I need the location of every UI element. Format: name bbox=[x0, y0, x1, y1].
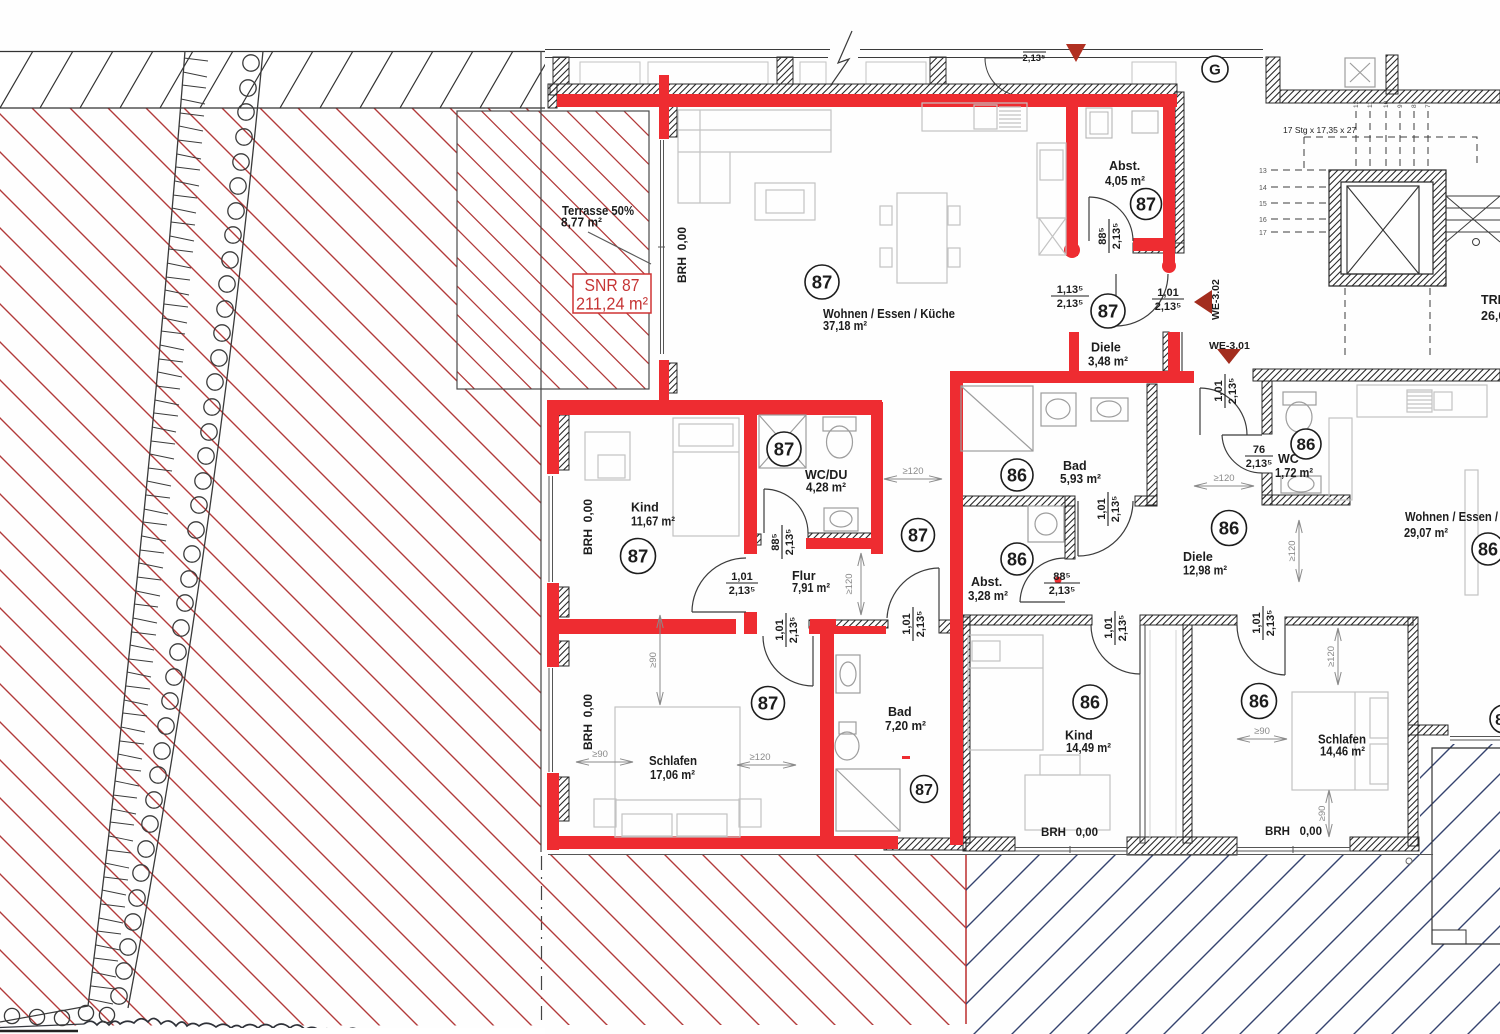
svg-text:Kind: Kind bbox=[631, 501, 659, 515]
svg-text:2,13⁵: 2,13⁵ bbox=[915, 611, 927, 638]
svg-text:2,13⁵: 2,13⁵ bbox=[1057, 298, 1084, 310]
svg-text:17 Stg x 17,35 x 27: 17 Stg x 17,35 x 27 bbox=[1283, 125, 1357, 135]
svg-text:7,20 m²: 7,20 m² bbox=[885, 719, 926, 733]
svg-text:Wohnen / Essen /: Wohnen / Essen / bbox=[1405, 510, 1498, 524]
svg-text:87: 87 bbox=[1098, 301, 1119, 322]
svg-text:2,13⁵: 2,13⁵ bbox=[1265, 610, 1277, 637]
svg-text:≥120: ≥120 bbox=[844, 573, 855, 594]
svg-text:Diele: Diele bbox=[1183, 550, 1213, 564]
svg-text:11,67 m²: 11,67 m² bbox=[631, 515, 675, 529]
svg-text:BRH 0,00: BRH 0,00 bbox=[1265, 824, 1322, 838]
svg-text:2,13⁵: 2,13⁵ bbox=[784, 529, 796, 556]
svg-text:1,01: 1,01 bbox=[1251, 612, 1263, 633]
svg-text:1,01: 1,01 bbox=[1213, 380, 1225, 401]
svg-text:WE-3.02: WE-3.02 bbox=[1210, 279, 1222, 320]
svg-text:TRH: TRH bbox=[1481, 293, 1500, 307]
svg-text:8,77 m²: 8,77 m² bbox=[561, 216, 602, 230]
svg-text:86: 86 bbox=[1478, 539, 1498, 559]
svg-text:86: 86 bbox=[1297, 435, 1316, 454]
svg-text:1,01: 1,01 bbox=[1157, 287, 1178, 299]
svg-text:9: 9 bbox=[1397, 104, 1404, 108]
svg-text:8: 8 bbox=[1411, 104, 1418, 108]
svg-text:1,01: 1,01 bbox=[774, 619, 786, 640]
svg-text:211,24 m²: 211,24 m² bbox=[576, 294, 648, 314]
svg-text:12,98 m²: 12,98 m² bbox=[1183, 564, 1227, 578]
svg-text:87: 87 bbox=[774, 439, 795, 460]
svg-text:2,13⁵: 2,13⁵ bbox=[1111, 223, 1123, 250]
svg-text:86: 86 bbox=[1219, 518, 1240, 539]
svg-text:2,13⁵: 2,13⁵ bbox=[1110, 496, 1122, 523]
svg-text:G: G bbox=[1209, 61, 1221, 78]
svg-text:1,01: 1,01 bbox=[731, 571, 752, 583]
svg-text:76: 76 bbox=[1253, 444, 1265, 456]
svg-text:Diele: Diele bbox=[1091, 341, 1121, 355]
svg-text:14,49 m²: 14,49 m² bbox=[1066, 741, 1111, 755]
svg-text:87: 87 bbox=[915, 782, 933, 799]
svg-text:37,18 m²: 37,18 m² bbox=[823, 319, 867, 333]
svg-text:2,13⁵: 2,13⁵ bbox=[1117, 615, 1129, 642]
svg-text:87: 87 bbox=[758, 693, 779, 714]
svg-text:≥90: ≥90 bbox=[1317, 806, 1328, 822]
svg-text:87: 87 bbox=[628, 546, 649, 567]
svg-text:7: 7 bbox=[1425, 104, 1432, 108]
svg-text:SNR 87: SNR 87 bbox=[585, 275, 640, 295]
svg-text:14: 14 bbox=[1259, 185, 1267, 192]
svg-text:1,01: 1,01 bbox=[901, 613, 913, 634]
svg-text:1,13⁵: 1,13⁵ bbox=[1057, 284, 1084, 296]
svg-text:1,01: 1,01 bbox=[1096, 498, 1108, 519]
svg-text:BRH 0,00: BRH 0,00 bbox=[581, 694, 595, 750]
svg-text:86: 86 bbox=[1080, 692, 1100, 712]
svg-text:Schlafen: Schlafen bbox=[649, 754, 697, 768]
svg-text:Abst.: Abst. bbox=[1109, 159, 1140, 173]
svg-text:88⁵: 88⁵ bbox=[1053, 571, 1070, 583]
svg-text:7,91 m²: 7,91 m² bbox=[792, 581, 830, 595]
svg-text:≥120: ≥120 bbox=[902, 466, 923, 477]
svg-text:3,48 m²: 3,48 m² bbox=[1088, 355, 1128, 369]
svg-text:2,13⁵: 2,13⁵ bbox=[1246, 458, 1273, 470]
svg-text:2,13⁵: 2,13⁵ bbox=[1049, 585, 1076, 597]
svg-text:87: 87 bbox=[812, 272, 833, 293]
svg-text:86: 86 bbox=[1007, 465, 1027, 485]
svg-text:≥120: ≥120 bbox=[1326, 646, 1337, 667]
svg-text:86: 86 bbox=[1249, 691, 1269, 711]
svg-text:87: 87 bbox=[1136, 194, 1156, 214]
svg-text:1,01: 1,01 bbox=[1103, 617, 1115, 638]
svg-text:2,13⁵: 2,13⁵ bbox=[788, 617, 800, 644]
svg-text:2,13⁵: 2,13⁵ bbox=[1023, 53, 1046, 64]
svg-text:BRH 0,00: BRH 0,00 bbox=[1041, 825, 1098, 839]
svg-text:4,28 m²: 4,28 m² bbox=[806, 481, 846, 495]
svg-text:10: 10 bbox=[1383, 100, 1390, 108]
svg-text:17,06 m²: 17,06 m² bbox=[650, 768, 695, 782]
svg-text:87: 87 bbox=[908, 525, 928, 545]
svg-text:17: 17 bbox=[1259, 230, 1267, 237]
svg-text:BRH 0,00: BRH 0,00 bbox=[581, 499, 595, 555]
svg-text:14,46 m²: 14,46 m² bbox=[1320, 745, 1365, 759]
svg-text:2,13⁵: 2,13⁵ bbox=[729, 585, 756, 597]
svg-text:1,72 m²: 1,72 m² bbox=[1275, 466, 1313, 480]
svg-text:13: 13 bbox=[1259, 168, 1267, 175]
svg-text:5,93 m²: 5,93 m² bbox=[1060, 472, 1101, 486]
svg-text:3,28 m²: 3,28 m² bbox=[968, 589, 1008, 603]
svg-text:4,05 m²: 4,05 m² bbox=[1105, 174, 1145, 188]
svg-text:≥90: ≥90 bbox=[648, 652, 659, 668]
svg-text:≥90: ≥90 bbox=[1254, 726, 1270, 737]
svg-text:15: 15 bbox=[1259, 201, 1267, 208]
svg-text:2,13⁵: 2,13⁵ bbox=[1155, 301, 1182, 313]
svg-text:11: 11 bbox=[1367, 101, 1374, 108]
svg-text:29,07 m²: 29,07 m² bbox=[1404, 526, 1448, 540]
svg-text:Bad: Bad bbox=[1063, 459, 1087, 473]
svg-text:Bad: Bad bbox=[888, 705, 912, 719]
svg-text:BRH 0,00: BRH 0,00 bbox=[675, 227, 689, 283]
svg-text:86: 86 bbox=[1007, 549, 1027, 569]
svg-text:88⁵: 88⁵ bbox=[770, 533, 782, 550]
svg-text:12: 12 bbox=[1353, 100, 1360, 108]
svg-text:88⁵: 88⁵ bbox=[1097, 227, 1109, 244]
svg-text:2,13⁵: 2,13⁵ bbox=[1227, 378, 1239, 405]
svg-text:Abst.: Abst. bbox=[971, 575, 1002, 589]
svg-text:26,0: 26,0 bbox=[1481, 309, 1500, 323]
svg-text:≥120: ≥120 bbox=[1213, 473, 1234, 484]
svg-text:86: 86 bbox=[1495, 712, 1500, 729]
svg-text:≥120: ≥120 bbox=[749, 752, 770, 763]
svg-text:≥120: ≥120 bbox=[1287, 540, 1298, 561]
svg-text:16: 16 bbox=[1259, 217, 1267, 224]
